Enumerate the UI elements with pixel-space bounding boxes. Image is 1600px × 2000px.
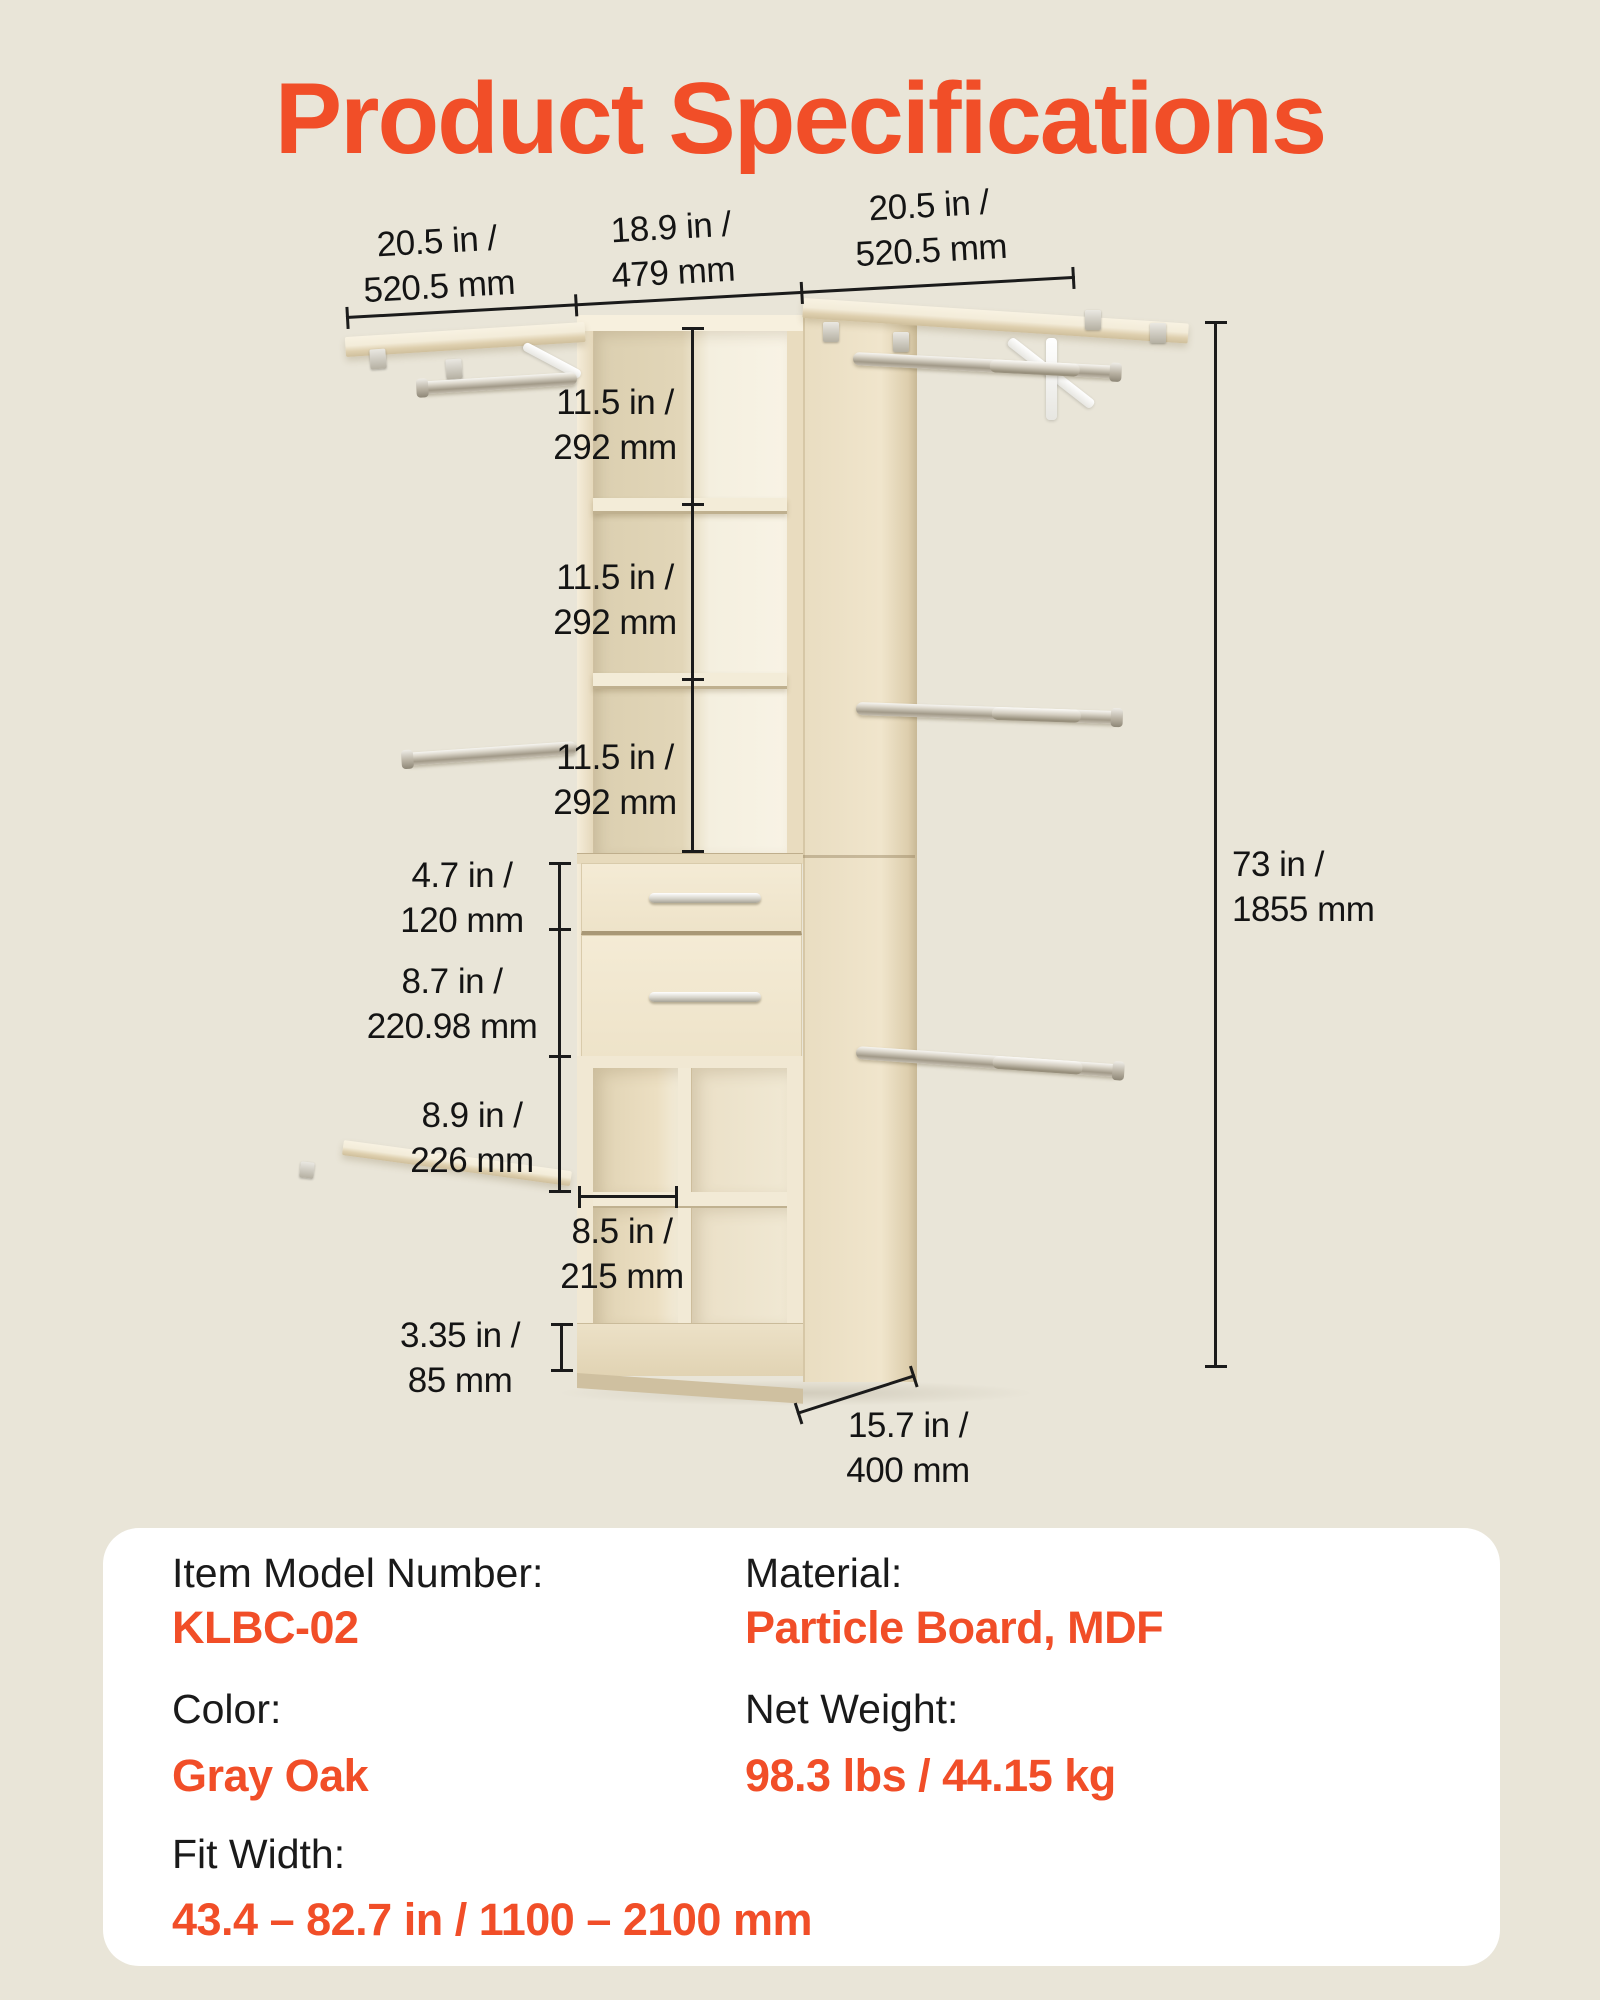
spec-value-fit-width: 43.4 – 82.7 in / 1100 – 2100 mm [172,1894,812,1946]
drawer-2-handle [649,992,761,1002]
rod-end-cap [401,749,414,769]
tower-shelf-2 [593,673,787,689]
dim-label-cubby-width: 8.5 in /215 mm [462,1210,782,1300]
spec-value-color: Gray Oak [172,1750,368,1802]
dim-tick [1205,321,1227,324]
right-shelf-bracket-2 [1150,323,1166,343]
spec-label-item-model-number: Item Model Number: [172,1550,543,1597]
dim-tick [578,1186,581,1208]
rod-end-cap [416,378,429,398]
dim-tick [549,1190,571,1193]
dim-label-right-shelf-width: 20.5 in /520.5 mm [768,175,1093,282]
tower-shelf-1 [593,498,787,514]
dim-tick [549,1055,571,1058]
spec-label-net-weight: Net Weight: [745,1686,958,1733]
dim-label-drawer-1: 4.7 in /120 mm [312,854,612,944]
right-upright-panel [803,312,917,1382]
dim-tick [1205,1365,1227,1368]
dim-tick [675,1186,678,1208]
right-panel-bracket-2 [893,332,909,352]
dim-line-total-height [1214,321,1217,1368]
base-kick-board [577,1323,803,1376]
right-panel-seam [803,855,915,858]
dim-label-upper-shelf-1: 11.5 in /292 mm [455,381,775,471]
dim-label-upper-shelf-2: 11.5 in /292 mm [455,556,775,646]
dim-label-upper-shelf-3: 11.5 in /292 mm [455,736,775,826]
dim-label-drawer-2: 8.7 in /220.98 mm [302,960,602,1050]
right-shelf-bracket-1 [1085,310,1101,330]
left-shelf-bracket-2 [445,358,462,379]
dim-label-depth: 15.7 in /400 mm [748,1404,1068,1494]
rod-end-cap [1111,708,1124,727]
dim-tick [682,850,704,853]
spec-value-material: Particle Board, MDF [745,1602,1163,1654]
spec-label-color: Color: [172,1686,281,1733]
tower-right-wall [787,331,803,853]
drawer-1-handle [649,893,761,903]
dim-label-side-shelf-clearance: 8.9 in /226 mm [322,1094,622,1184]
dim-tick [1071,266,1075,288]
spec-value-net-weight: 98.3 lbs / 44.15 kg [745,1750,1116,1802]
dim-tick [682,503,704,506]
dim-label-base-height: 3.35 in /85 mm [310,1314,610,1404]
lower-shelf-bracket [299,1161,315,1178]
page-title: Product Specifications [0,62,1600,177]
dim-line-cubby-width [578,1195,678,1198]
right-panel-bracket-1 [823,322,839,342]
dim-tick [682,327,704,330]
spec-label-material: Material: [745,1550,902,1597]
right-shelf-vertical-bracket [1046,338,1057,420]
rod-telescope-sleeve [992,707,1081,723]
dim-label-total-height: 73 in /1855 mm [1232,843,1532,933]
spec-value-item-model-number: KLBC-02 [172,1602,359,1654]
rod-end-cap [1109,362,1122,382]
spec-panel: Item Model Number: KLBC-02 Color: Gray O… [103,1528,1500,1966]
spec-sheet: Product Specifications [0,0,1600,2000]
rod-telescope-sleeve [990,359,1080,377]
rod-end-cap [1112,1061,1125,1081]
spec-label-fit-width: Fit Width: [172,1831,345,1878]
rod-telescope-sleeve [992,1056,1082,1075]
left-shelf-bracket-1 [369,348,386,369]
cubby-top-right [691,1068,787,1192]
dim-tick [682,678,704,681]
